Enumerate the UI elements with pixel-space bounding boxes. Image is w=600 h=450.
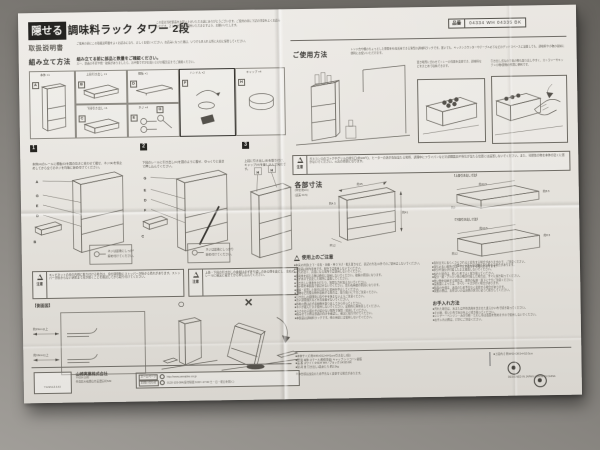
svg-text:C: C [141, 234, 144, 238]
svg-text:D: D [36, 214, 39, 218]
svg-text:約8.5: 約8.5 [543, 233, 550, 237]
part-d-drawing [134, 82, 174, 99]
usage-intro: レンジ台や棚のちょっとした隙間を有効活用できる薄型の調味料ラックです。置いても、… [351, 45, 565, 55]
sideview-diagram: 約19cm以上 約19cm以上 [31, 308, 152, 378]
svg-text:H: H [256, 171, 259, 175]
brand-logo-text: YAMAZAKI [35, 386, 71, 390]
specs-divider [295, 347, 571, 352]
step-1-number: 1 [30, 145, 37, 152]
globe-icon [160, 374, 165, 379]
item-number-value: 04334 WH 04335 BK [465, 17, 527, 28]
dimensions-unit-note: (単位:約cm) [295, 189, 309, 193]
part-c-drawing [83, 115, 123, 136]
usage-label: ご使用方法 [293, 49, 328, 60]
svg-text:約40.5: 約40.5 [479, 182, 488, 186]
step-3-diagram: H H [242, 165, 300, 264]
svg-text:約19cm以上: 約19cm以上 [33, 353, 48, 357]
incorrect-example-diagram [219, 309, 302, 376]
part-cell-e: Eネジ ×4 G [127, 103, 180, 138]
usage-panel-2 [417, 78, 486, 143]
warning-triangle-icon [297, 157, 303, 163]
svg-text:G: G [36, 194, 39, 198]
caution-box-2: 注意 上段・下段の引き出しの奥端は必ず折り返しのある側を奥にし、左右のレールに確… [188, 267, 298, 297]
svg-text:約45: 約45 [357, 182, 363, 186]
step-1-diagram: A G E D B ネジは最後にしっかり 締め付けてください。 [30, 164, 134, 268]
svg-text:D: D [144, 198, 147, 202]
usage-panel-2-drawing [418, 79, 483, 140]
lower-drawer-label: 【下段引き出し寸法】 [453, 218, 479, 222]
svg-text:約19cm以上: 約19cm以上 [33, 327, 48, 331]
precautions-label: 使用上のご注意 [294, 254, 334, 261]
part-b-drawing [82, 81, 122, 102]
made-in-text: DESIGNED IN JAPAN / MADE IN CHINA [492, 375, 572, 380]
part-cell-f-highlighted: Fハンドル ×2 [179, 68, 236, 137]
sideview-label: 【側面図】 [33, 303, 53, 309]
part-cell-a: A本体 ×1 [29, 71, 76, 140]
part-cell-d: D棚板 ×1 [127, 69, 180, 104]
svg-text:約41: 約41 [402, 210, 408, 214]
contact-box: ホームページ http://www.yamajitsu.co.jp お問い合わせ… [136, 370, 300, 388]
usage-panel-2-caption: 置き場所に合わせてトレーの位置を変更でき、調味料などをまとめて収納できます。 [417, 60, 483, 68]
part-cell-c: C下段引き出し ×1 [75, 104, 128, 139]
item-number-box: 品番 04334 WH 04335 BK [448, 17, 527, 28]
svg-text:ネジは最後にしっかり: ネジは最後にしっかり [206, 247, 234, 251]
caution-box-1: 注意 キャビネットの扉の内側に取り付ける場合は、扉の開閉時にストッパーが掛かる恐… [32, 269, 184, 299]
svg-text:E: E [36, 204, 39, 208]
printed-page: 隠せる調味料ラック タワー 2段 この度は当社製品をお買い上げいただき誠にありが… [18, 5, 582, 404]
dimensions-tolerance-note: (誤差 ±0.5) [295, 194, 308, 198]
svg-text:締め付けてください。: 締め付けてください。 [206, 252, 234, 256]
title-side-note: この度は当社製品をお買い上げいただき誠にありがとうございます。ご使用の前に下記の… [156, 19, 282, 28]
main-dimensions-diagram: 約45 約41 約12 約4.5 [327, 179, 414, 246]
precautions-column-1: ■本来の用途(上下・左右・前後・吊り下げ・据え置きなど、表記の方法)以外でのご使… [294, 262, 427, 320]
assembly-label: 組み立て方法 [29, 56, 71, 67]
svg-text:H: H [270, 168, 273, 172]
svg-text:約9: 約9 [451, 206, 456, 210]
parts-list-grid: A本体 ×1 B上段引き出し ×1 D棚板 ×1 Fハンドル ×2 [29, 67, 286, 139]
warning-triangle-icon [193, 272, 199, 278]
caution-1-text: キャビネットの扉の内側に取り付ける場合は、扉の開閉時にストッパーが掛かる恐れがあ… [47, 270, 183, 298]
item-number-label: 品番 [448, 18, 465, 28]
caution-1-icon-cell: 注意 [33, 272, 47, 298]
precautions-column-2: ■直射日光に長らくさらされると変色する場合がありますので、ご注意ください。■湿気… [432, 260, 570, 294]
certification-mark-1-icon [508, 362, 521, 375]
upper-drawer-label: 【上段引き出し寸法】 [453, 174, 479, 178]
usage-panel-3-drawing [492, 76, 565, 141]
usage-panel-3 [491, 75, 568, 144]
placement-caution-icon-cell: 注意 [293, 156, 307, 174]
company-block: 山崎実業株式会社 〒639-1185 奈良県大和郡山市美濃庄町529 [76, 371, 132, 384]
usage-scene-diagram [293, 61, 412, 151]
care-label: お手入れ方法 [433, 301, 460, 307]
manual-label: 取扱説明書 [28, 42, 63, 53]
caution-2-text: 上段・下段の引き出しの奥端は必ず折り返しのある側を奥にし、左右のレールに確実に載… [203, 268, 297, 295]
usage-panel-3-caption: 引き出し式なので奥の物も取り出しやすく、カトラリーやキッチン小物/袋物の整理に便… [491, 59, 565, 67]
svg-text:約12: 約12 [452, 252, 458, 256]
svg-text:F: F [144, 208, 147, 212]
svg-text:約8.5: 約8.5 [543, 189, 550, 193]
part-letter-g: G [156, 106, 163, 113]
warning-triangle-icon [294, 255, 300, 261]
step-2-diagram: G E D F C ネジは最後にしっかり 締め付けてください。 [140, 162, 236, 265]
company-address: 奈良県大和郡山市美濃庄町529 [76, 379, 132, 383]
step-2-number: 2 [140, 143, 147, 150]
phone-icon [160, 380, 165, 385]
photo-of-instruction-sheet: { "colors":{"paper":"#e9e6e1","backgroun… [0, 0, 600, 450]
lower-drawer-diagram: 約40.5 約8.5 約12 [451, 223, 564, 263]
svg-text:約12: 約12 [330, 243, 336, 246]
caution-2-icon-cell: 注意 [189, 270, 203, 296]
part-cell-h: Hキャップ ×4 [235, 67, 286, 136]
placement-caution-text: ガスコンロのゴトクやグリルの排気口(約100℃)、ヒーターの熱が直接当たる場所、… [307, 152, 569, 174]
svg-text:G: G [144, 176, 147, 180]
svg-text:約40.5: 約40.5 [479, 226, 488, 230]
brand-logo-box: YAMAZAKI [34, 372, 72, 395]
care-lines: ■汚れた場合は、水または中性洗剤を含ませた柔らかい布で拭き取ってください。■その… [433, 306, 571, 322]
part-h-drawing [244, 84, 279, 125]
incorrect-mark: × [244, 294, 252, 310]
svg-text:A: A [36, 180, 39, 184]
placement-caution-bar: 注意 ガスコンロのゴトクやグリルの排気口(約100℃)、ヒーターの熱が直接当たる… [292, 151, 570, 175]
precaution-line: ■廃棄の際は、お住まいの自治体の区分に従って処分してください。 [432, 288, 570, 294]
title-highlight-box: 隠せる [28, 22, 66, 41]
spec-vertical-divider [489, 352, 490, 366]
tel-number: 0120-105-084(受付時間 9:00〜17:00 土・日・祝日を除く) [167, 380, 234, 384]
warning-triangle-icon [37, 274, 43, 280]
tel-label: お問い合わせ [139, 380, 159, 386]
svg-text:ネジは最後にしっかり: ネジは最後にしっかり [108, 249, 134, 253]
part-f-drawing [188, 81, 227, 130]
part-g-drawing [156, 113, 176, 131]
svg-text:B: B [34, 240, 37, 244]
manual-note: ご使用の前にこの取扱説明書をよくお読みになり、正しくお使いください。お読みになっ… [76, 39, 281, 46]
step-3-number: 3 [242, 142, 249, 149]
correct-mark: ○ [177, 297, 184, 311]
part-cell-b: B上段引き出し ×1 [75, 70, 128, 105]
svg-text:約4.5: 約4.5 [329, 201, 336, 205]
spec-extra: ■上段内寸 約W42×D8.5×H10.5cm [493, 352, 571, 357]
svg-text:締め付けてください。: 締め付けてください。 [108, 254, 134, 258]
right-header-divider [290, 36, 566, 41]
upper-drawer-diagram: 約40.5 約8.5 約9 [451, 179, 564, 215]
web-url: http://www.yamajitsu.co.jp [167, 375, 197, 378]
svg-text:E: E [144, 188, 147, 192]
part-a-drawing [38, 81, 69, 135]
spec-footnote: ※本仕様は改良のため予告なく変更する場合があります。 [296, 370, 486, 376]
spec-lines: ■本体サイズ 約W45×D12×H41cm(引き出し2段)■材 質 本体:スチー… [295, 352, 485, 369]
dimensions-label: 各部寸法 [295, 179, 323, 189]
instruction-sheet-paper: 隠せる調味料ラック タワー 2段 この度は当社製品をお買い上げいただき誠にありが… [18, 5, 582, 404]
